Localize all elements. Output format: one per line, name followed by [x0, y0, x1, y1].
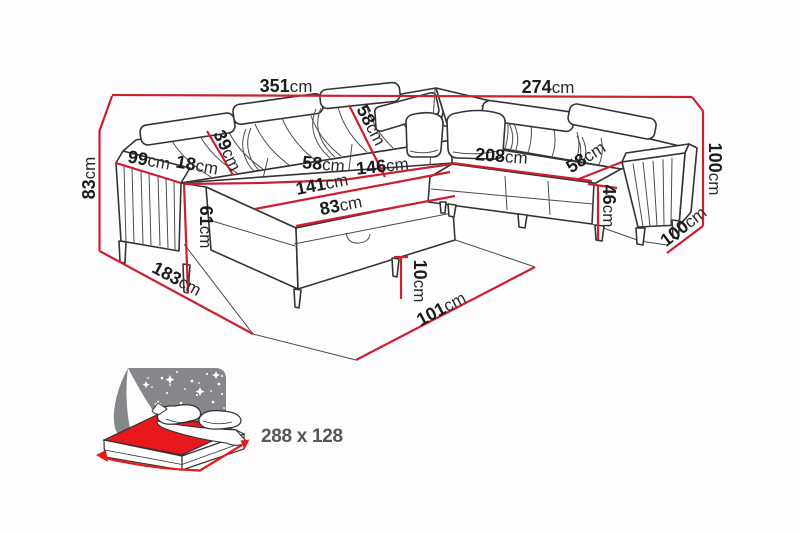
svg-text:288 x 128: 288 x 128	[261, 426, 343, 447]
svg-text:46cm: 46cm	[599, 185, 619, 228]
svg-text:83cm: 83cm	[79, 157, 99, 200]
svg-text:351cm: 351cm	[260, 76, 313, 96]
svg-text:10cm: 10cm	[410, 260, 430, 303]
svg-text:100cm: 100cm	[705, 143, 725, 196]
svg-text:208cm: 208cm	[474, 144, 528, 168]
svg-text:61cm: 61cm	[196, 206, 216, 249]
svg-text:274cm: 274cm	[522, 77, 575, 97]
